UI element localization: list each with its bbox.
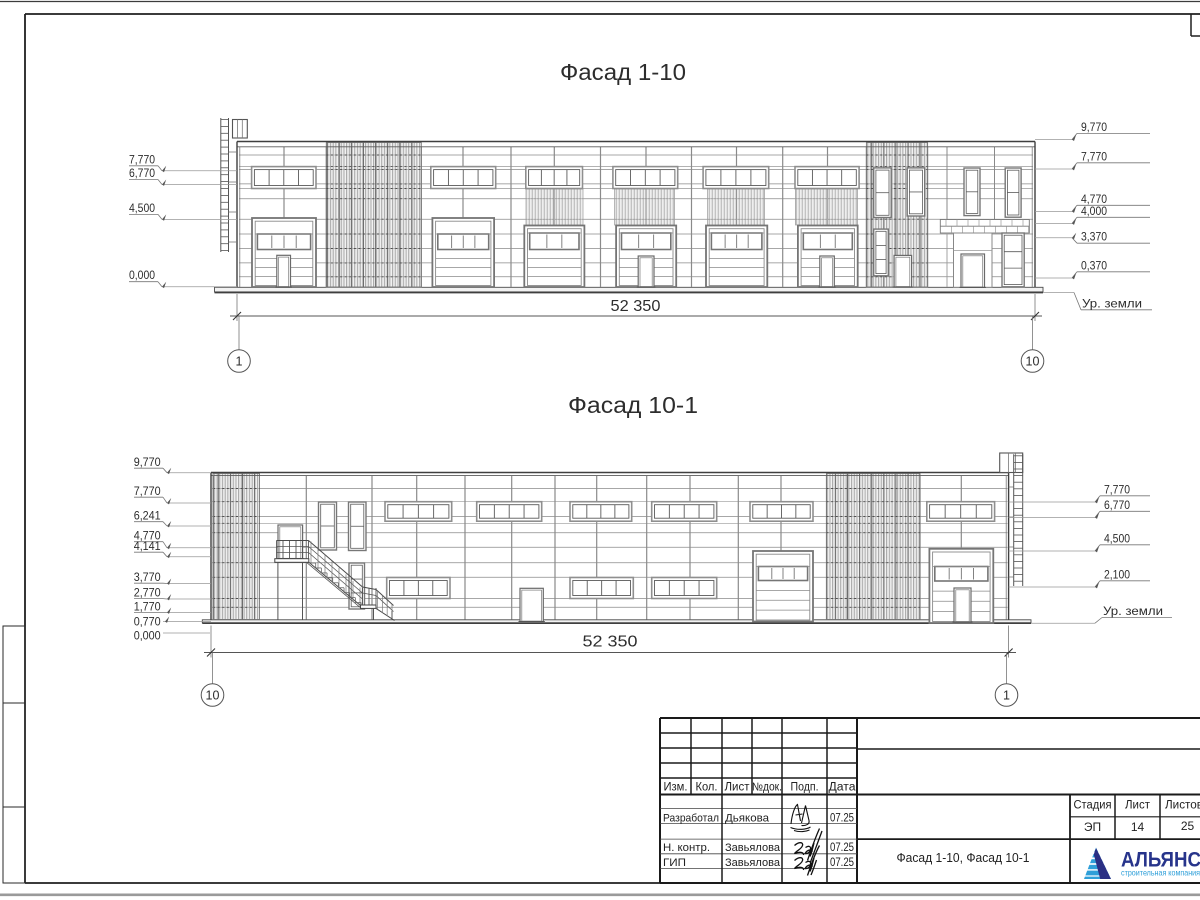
svg-text:ГИП: ГИП xyxy=(663,857,686,869)
svg-text:Разработал: Разработал xyxy=(663,813,719,825)
svg-text:1: 1 xyxy=(236,355,243,369)
svg-text:0,770: 0,770 xyxy=(134,615,161,629)
svg-text:Ур. земли: Ур. земли xyxy=(1082,297,1142,311)
svg-text:07.25: 07.25 xyxy=(830,857,854,869)
svg-text:ЭП: ЭП xyxy=(1084,820,1101,834)
svg-text:Кол.: Кол. xyxy=(696,782,718,794)
svg-text:10: 10 xyxy=(206,689,220,703)
svg-text:Стадия: Стадия xyxy=(1074,800,1112,812)
svg-text:10: 10 xyxy=(1026,355,1040,369)
svg-text:07.25: 07.25 xyxy=(830,842,854,854)
svg-text:7,770: 7,770 xyxy=(134,484,161,498)
svg-text:Н. контр.: Н. контр. xyxy=(663,842,710,854)
svg-text:4,500: 4,500 xyxy=(129,201,155,215)
svg-text:Ур. земли: Ур. земли xyxy=(1103,604,1163,618)
svg-text:0,000: 0,000 xyxy=(129,268,155,282)
svg-text:4,500: 4,500 xyxy=(1104,531,1130,545)
svg-text:14: 14 xyxy=(1131,820,1145,834)
svg-text:07.25: 07.25 xyxy=(830,813,854,825)
svg-text:Подп.: Подп. xyxy=(791,782,819,794)
svg-text:Лист: Лист xyxy=(1125,800,1151,812)
svg-text:9,770: 9,770 xyxy=(1081,120,1107,134)
svg-text:Завьялова: Завьялова xyxy=(725,842,780,854)
svg-text:6,770: 6,770 xyxy=(1104,498,1130,512)
svg-text:Фасад 1-10: Фасад 1-10 xyxy=(560,59,686,85)
svg-text:Фасад 1-10, Фасад 10-1: Фасад 1-10, Фасад 10-1 xyxy=(897,850,1030,865)
svg-text:Листов: Листов xyxy=(1165,800,1200,812)
svg-text:Дьякова: Дьякова xyxy=(725,813,769,825)
svg-text:0,370: 0,370 xyxy=(1081,258,1107,272)
svg-text:2,770: 2,770 xyxy=(134,585,161,599)
svg-text:1: 1 xyxy=(1003,689,1010,703)
svg-text:52 350: 52 350 xyxy=(611,298,661,315)
svg-text:№док.: №док. xyxy=(752,782,782,794)
svg-text:Завьялова: Завьялова xyxy=(725,857,780,869)
svg-text:4,000: 4,000 xyxy=(1081,204,1107,218)
svg-text:7,770: 7,770 xyxy=(1081,149,1107,163)
svg-text:Дата: Дата xyxy=(829,782,857,794)
svg-text:7,770: 7,770 xyxy=(129,152,155,166)
svg-text:строительная компания: строительная компания xyxy=(1121,869,1200,878)
svg-text:3,370: 3,370 xyxy=(1081,230,1107,244)
svg-text:9,770: 9,770 xyxy=(134,455,161,469)
svg-text:25: 25 xyxy=(1181,819,1195,833)
svg-text:52 350: 52 350 xyxy=(583,634,638,651)
svg-text:7,770: 7,770 xyxy=(1104,482,1130,496)
svg-text:4,141: 4,141 xyxy=(134,539,161,553)
svg-text:1,770: 1,770 xyxy=(134,599,161,613)
svg-text:2,100: 2,100 xyxy=(1104,567,1130,581)
svg-text:6,241: 6,241 xyxy=(134,509,161,523)
svg-text:3,770: 3,770 xyxy=(134,570,161,584)
svg-text:Фасад 10-1: Фасад 10-1 xyxy=(568,392,698,418)
svg-text:Изм.: Изм. xyxy=(664,782,688,794)
svg-text:Лист: Лист xyxy=(725,782,751,794)
svg-text:0,000: 0,000 xyxy=(134,629,161,643)
svg-text:6,770: 6,770 xyxy=(129,166,155,180)
